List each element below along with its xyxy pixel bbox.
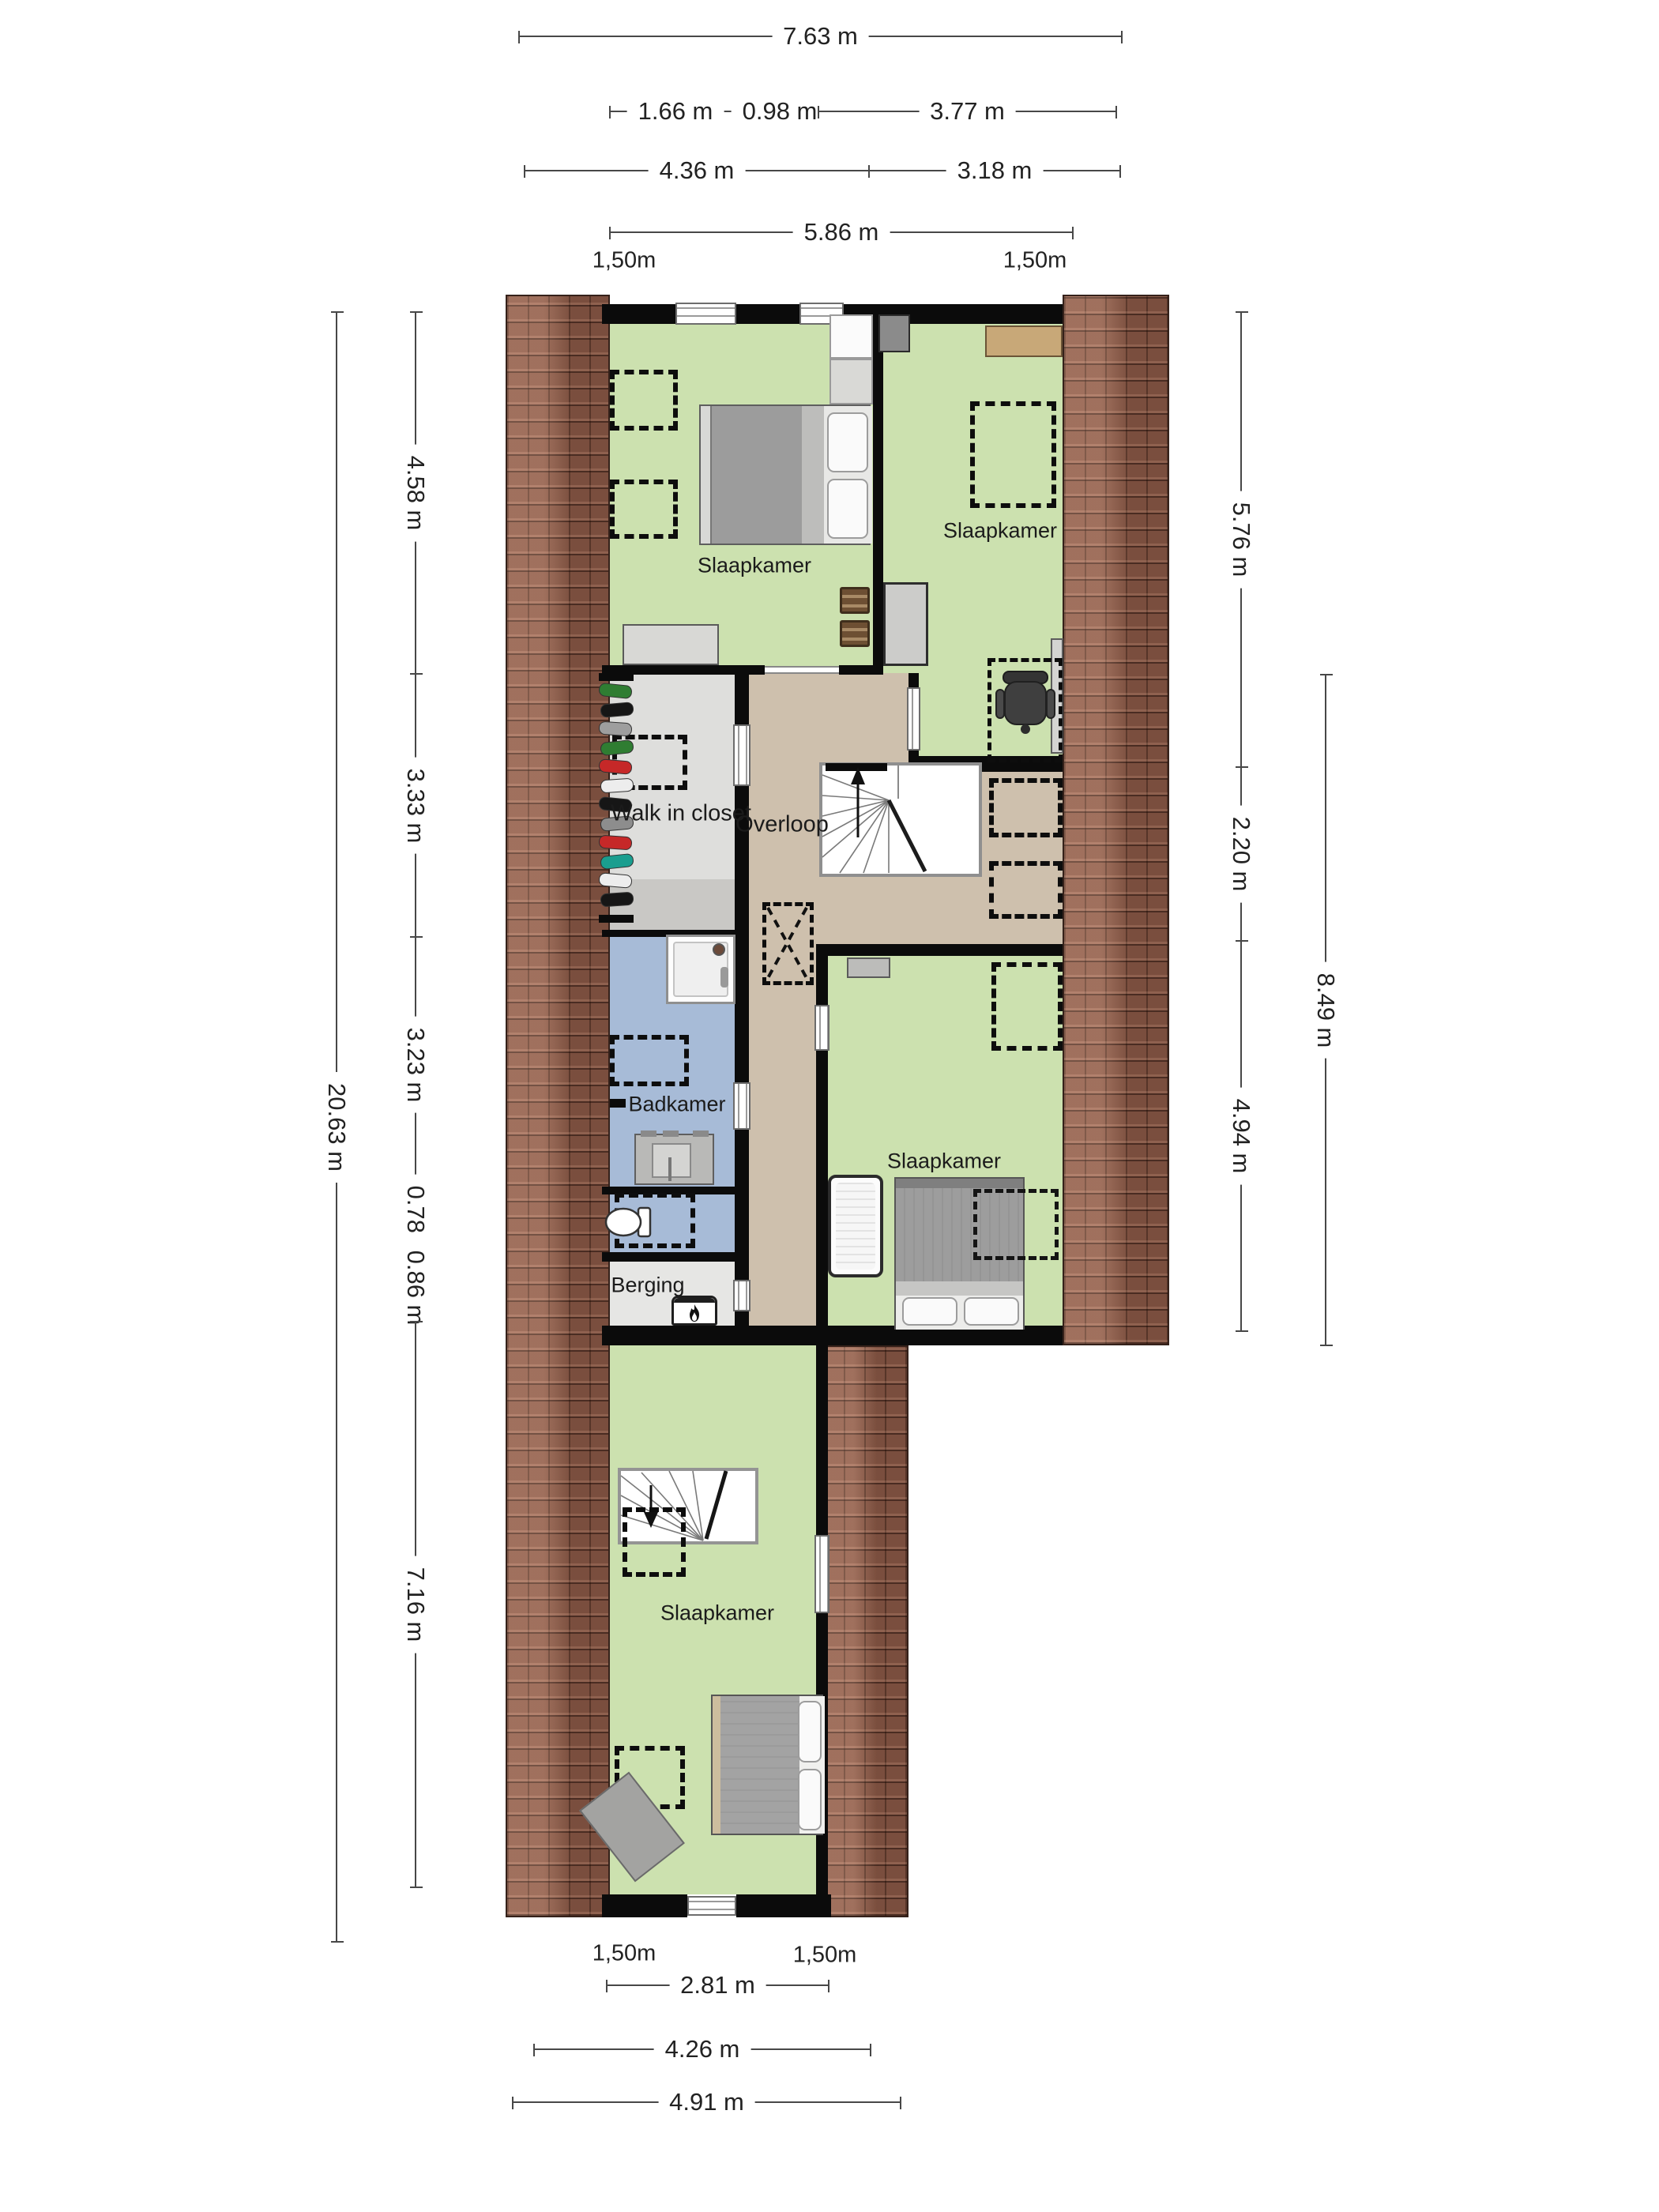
- stair-eave-outline: [623, 1507, 686, 1577]
- sink-vanity: [634, 1134, 714, 1185]
- dim-426: 4.26 m: [534, 2048, 871, 2050]
- room-landing-a: [749, 673, 910, 772]
- dim-098: 0.98 m: [741, 111, 818, 112]
- dim-494: 4.94 m: [1240, 941, 1242, 1331]
- dim-576: 5.76 m: [1240, 312, 1242, 767]
- skylight-outline-bedroom2: [970, 401, 1056, 508]
- eave-closet-tan-2: [989, 861, 1063, 919]
- dim-eave-top-right: 1,50m: [1003, 248, 1067, 274]
- wardrobe-x-outline: [762, 902, 814, 985]
- wall-bedroom1-south-b: [839, 665, 883, 675]
- dresser: [623, 624, 719, 665]
- daybed-mattress: [828, 1175, 883, 1277]
- shelf-desk-top: [985, 325, 1063, 357]
- pillow: [827, 412, 868, 472]
- label-storage: Berging: [611, 1273, 684, 1298]
- label-bedroom-top-left: Slaapkamer: [698, 554, 811, 578]
- dim-458: 4.58 m: [415, 312, 416, 674]
- pillow: [827, 479, 868, 539]
- label-walk-in-closet: Walk in closet: [611, 801, 751, 827]
- radiator-bedroom3: [847, 957, 890, 978]
- double-bed-top-left: [699, 404, 871, 545]
- dim-220: 2.20 m: [1240, 767, 1242, 941]
- wall-attic-south-b: [736, 1894, 831, 1917]
- wall-storage-divider: [602, 1252, 741, 1262]
- clothes-rail-end-bottom: [599, 915, 634, 923]
- shower-drain-icon: [713, 943, 725, 956]
- dim-eave-bottom-left: 1,50m: [592, 1941, 656, 1967]
- boiler: [671, 1296, 717, 1326]
- label-bedroom-attic: Slaapkamer: [660, 1601, 774, 1626]
- flame-icon: [687, 1304, 702, 1323]
- dim-491: 4.91 m: [513, 2101, 901, 2103]
- door-leaf-bedroom2: [878, 314, 910, 352]
- label-bathroom: Badkamer: [628, 1093, 725, 1117]
- label-bedroom-middle: Slaapkamer: [887, 1149, 1001, 1174]
- wall-bedroom3-north: [816, 944, 1063, 956]
- window-bathroom-east-2: [733, 1280, 750, 1311]
- wall-bedroom3-west: [816, 944, 828, 1326]
- radiator-stub: [610, 1099, 626, 1108]
- roof-right-wing: [822, 1345, 908, 1917]
- pillow: [902, 1297, 957, 1326]
- shower-head-icon: [720, 967, 728, 987]
- shower-tray: [666, 935, 735, 1004]
- eave-closet-bedroom3: [991, 962, 1063, 1051]
- dim-eave-top-left: 1,50m: [592, 248, 656, 274]
- eave-storage-outline-1: [610, 370, 678, 431]
- label-landing: Overloop: [735, 812, 829, 838]
- dim-eave-bottom-right: 1,50m: [793, 1943, 857, 1969]
- dim-323: 3.23 m: [415, 937, 416, 1192]
- wardrobe-white: [829, 314, 873, 359]
- clothes-rail-end-top: [599, 673, 634, 681]
- dim-total-width: 7.63 m: [519, 36, 1122, 37]
- pillow: [964, 1297, 1019, 1326]
- roof-left: [506, 295, 610, 1917]
- ladder-chair-2: [840, 620, 870, 647]
- dim-086: 0.86 m: [415, 1254, 416, 1322]
- floor-plan: Slaapkamer Slaapkamer Walk in closet Ove…: [0, 0, 1659, 2212]
- wardrobe-grey: [829, 359, 873, 404]
- dim-333: 3.33 m: [415, 674, 416, 937]
- window-bedroom3-west: [814, 1005, 829, 1051]
- dim-849: 8.49 m: [1325, 675, 1326, 1345]
- wall-bathroom-east: [735, 937, 749, 1326]
- dim-436: 4.36 m: [525, 170, 869, 171]
- office-chair-icon: [994, 668, 1057, 735]
- dim-377: 3.77 m: [818, 111, 1116, 112]
- eave-closet-tan-1: [989, 778, 1063, 837]
- wall-attic-south-a: [602, 1894, 687, 1917]
- bed-footboard: [701, 406, 712, 544]
- bed-sheet-band: [802, 406, 824, 544]
- toilet-icon: [604, 1205, 654, 1240]
- window-top-1: [675, 303, 736, 325]
- wall-divider-bedrooms: [873, 324, 883, 673]
- window-attic-east: [814, 1535, 829, 1613]
- window-bathroom-east-1: [733, 1082, 750, 1130]
- label-bedroom-top-right: Slaapkamer: [943, 519, 1057, 544]
- pillow: [798, 1701, 822, 1762]
- window-attic-south: [687, 1896, 736, 1916]
- bath-outline: [610, 1035, 689, 1086]
- stairs-up-icon: [819, 762, 982, 877]
- eave-line-over-bed: [973, 1189, 1059, 1260]
- dim-total-height: 20.63 m: [336, 312, 337, 1942]
- dim-586: 5.86 m: [610, 231, 1073, 233]
- window-closet: [733, 724, 750, 786]
- eave-storage-outline-2: [610, 480, 678, 539]
- window-bedroom2-west: [907, 687, 920, 750]
- roof-right-main: [1063, 295, 1169, 1345]
- dim-716: 7.16 m: [415, 1322, 416, 1887]
- ladder-chair-1: [840, 587, 870, 614]
- double-bed-attic: [711, 1695, 823, 1835]
- dim-318: 3.18 m: [869, 170, 1120, 171]
- desk-bedroom2: [883, 582, 928, 666]
- dim-166: 1.66 m: [610, 111, 741, 112]
- pillow: [798, 1769, 822, 1830]
- door-bedroom1: [765, 666, 839, 674]
- room-landing-c: [749, 944, 824, 1326]
- dim-281: 2.81 m: [607, 1984, 829, 1986]
